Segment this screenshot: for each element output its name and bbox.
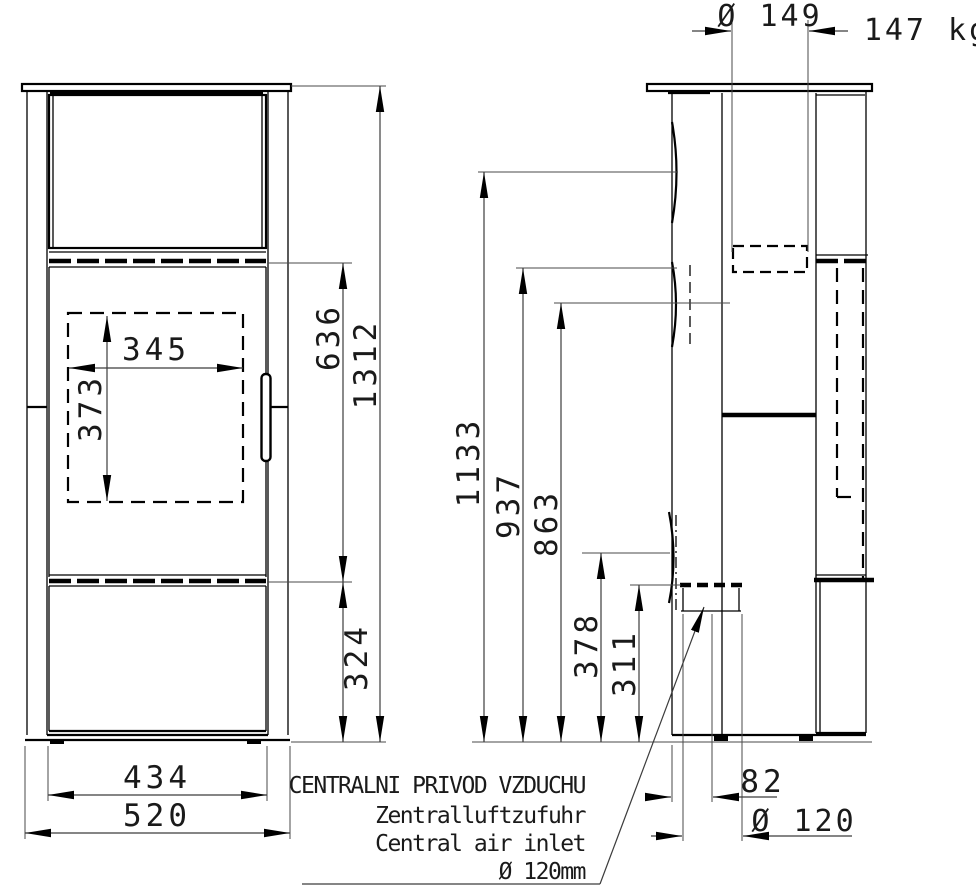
front-left-foot: [50, 740, 64, 744]
dim-1312: 1312: [348, 319, 384, 410]
dim-378: 378: [569, 611, 605, 679]
flue-collar-hidden: [733, 246, 807, 272]
door-handle: [262, 374, 271, 461]
dim-120: Ø 120: [751, 804, 856, 839]
dim-937: 937: [491, 471, 527, 539]
side-back-bow-lower: [669, 512, 674, 603]
weight-label: 147 kg: [864, 13, 976, 48]
front-right-foot: [247, 740, 261, 744]
dim-434: 434: [123, 760, 191, 796]
front-view: 345 373 636 1312 324 434 520: [22, 84, 386, 839]
note-line-1: CENTRALNI PRIVOD VZDUCHU: [289, 773, 586, 799]
side-front-foot: [799, 736, 813, 741]
dim-520: 520: [123, 798, 191, 834]
dim-1133: 1133: [451, 417, 487, 508]
front-upper-glass: [49, 95, 266, 248]
dim-636: 636: [311, 303, 347, 371]
technical-drawing: 345 373 636 1312 324 434 520: [0, 0, 976, 896]
dim-373: 373: [73, 374, 109, 442]
dim-324: 324: [339, 623, 375, 691]
dim-311: 311: [607, 629, 643, 697]
front-top-plate: [22, 84, 291, 91]
note-line-4: Ø 120mm: [499, 859, 586, 885]
dim-345: 345: [122, 332, 190, 368]
dim-82: 82: [740, 764, 785, 800]
dim-149: Ø 149: [717, 0, 822, 34]
note-line-2: Zentralluftzufuhr: [375, 803, 586, 829]
side-view: 1133 937 863 378 311 Ø 149 147 kg 82 Ø 1…: [451, 0, 976, 841]
dim-863: 863: [529, 489, 565, 557]
side-top-plate: [647, 84, 872, 91]
note-line-3: Central air inlet: [375, 831, 585, 857]
side-back-foot: [714, 736, 728, 741]
